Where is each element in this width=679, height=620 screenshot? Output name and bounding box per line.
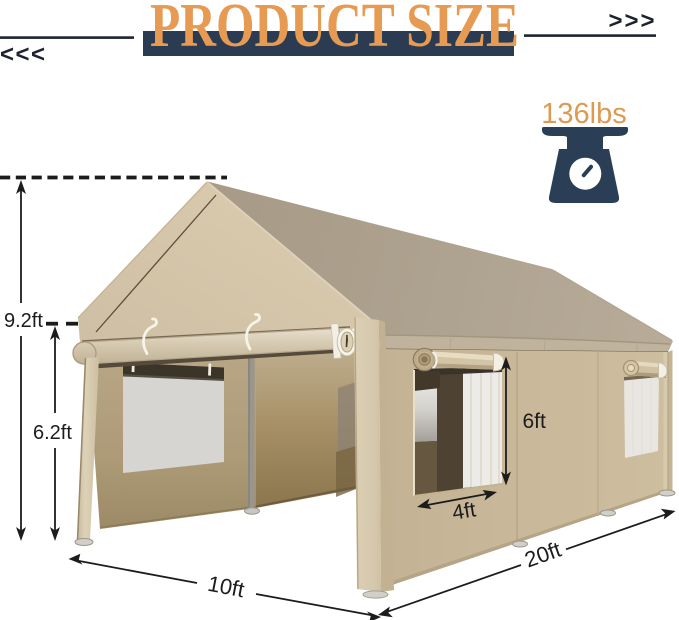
svg-text:6.2ft: 6.2ft xyxy=(33,422,72,444)
svg-text:9.2ft: 9.2ft xyxy=(4,310,43,332)
svg-text:<<<: <<< xyxy=(0,41,47,68)
svg-text:4ft: 4ft xyxy=(451,498,478,524)
svg-text:>>>: >>> xyxy=(609,8,657,35)
svg-text:PRODUCT SIZE: PRODUCT SIZE xyxy=(150,0,519,60)
svg-text:6ft: 6ft xyxy=(523,410,547,433)
svg-text:136lbs: 136lbs xyxy=(541,98,626,130)
